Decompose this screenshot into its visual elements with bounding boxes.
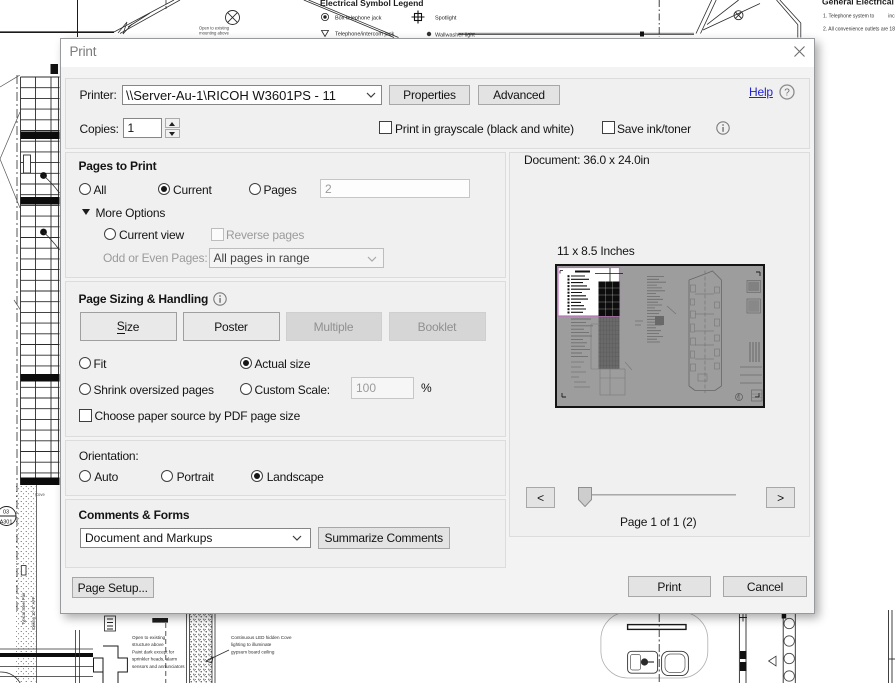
svg-text:Ceiling 10'-0" AFF: Ceiling 10'-0" AFF — [31, 596, 36, 630]
svg-text:Cove: Cove — [35, 492, 45, 497]
svg-text:gypsum board ceiling: gypsum board ceiling — [231, 649, 275, 654]
svg-text:Continuous LED hidden Cove: Continuous LED hidden Cove — [231, 635, 292, 640]
svg-text:structure above: structure above — [132, 642, 164, 647]
svg-text:Box telephone jack: Box telephone jack — [335, 16, 382, 22]
svg-text:Spotlight: Spotlight — [435, 16, 457, 22]
svg-text:Paint dark except for: Paint dark except for — [132, 649, 175, 654]
svg-text:03: 03 — [3, 510, 9, 516]
svg-text:1. Telephone system to: 1. Telephone system to inc — [823, 14, 895, 20]
svg-text:General Electrical N: General Electrical N — [822, 0, 895, 7]
svg-text:Typical Steel Pair: Typical Steel Pair — [21, 592, 26, 625]
svg-text:lighting to illuminate: lighting to illuminate — [231, 642, 272, 647]
svg-text:mounting above: mounting above — [199, 31, 229, 36]
svg-text:Electrical Symbol Legend: Electrical Symbol Legend — [320, 0, 423, 8]
svg-text:2. All convenience outlets are: 2. All convenience outlets are 18" AF — [823, 27, 895, 33]
svg-text:Open to existing: Open to existing — [132, 635, 166, 640]
svg-text:sensors and annunciators: sensors and annunciators — [132, 664, 185, 669]
svg-text:?: ? — [784, 87, 790, 98]
svg-text:sprinkler heads, alarm: sprinkler heads, alarm — [132, 657, 177, 662]
svg-text:A301: A301 — [0, 520, 12, 526]
